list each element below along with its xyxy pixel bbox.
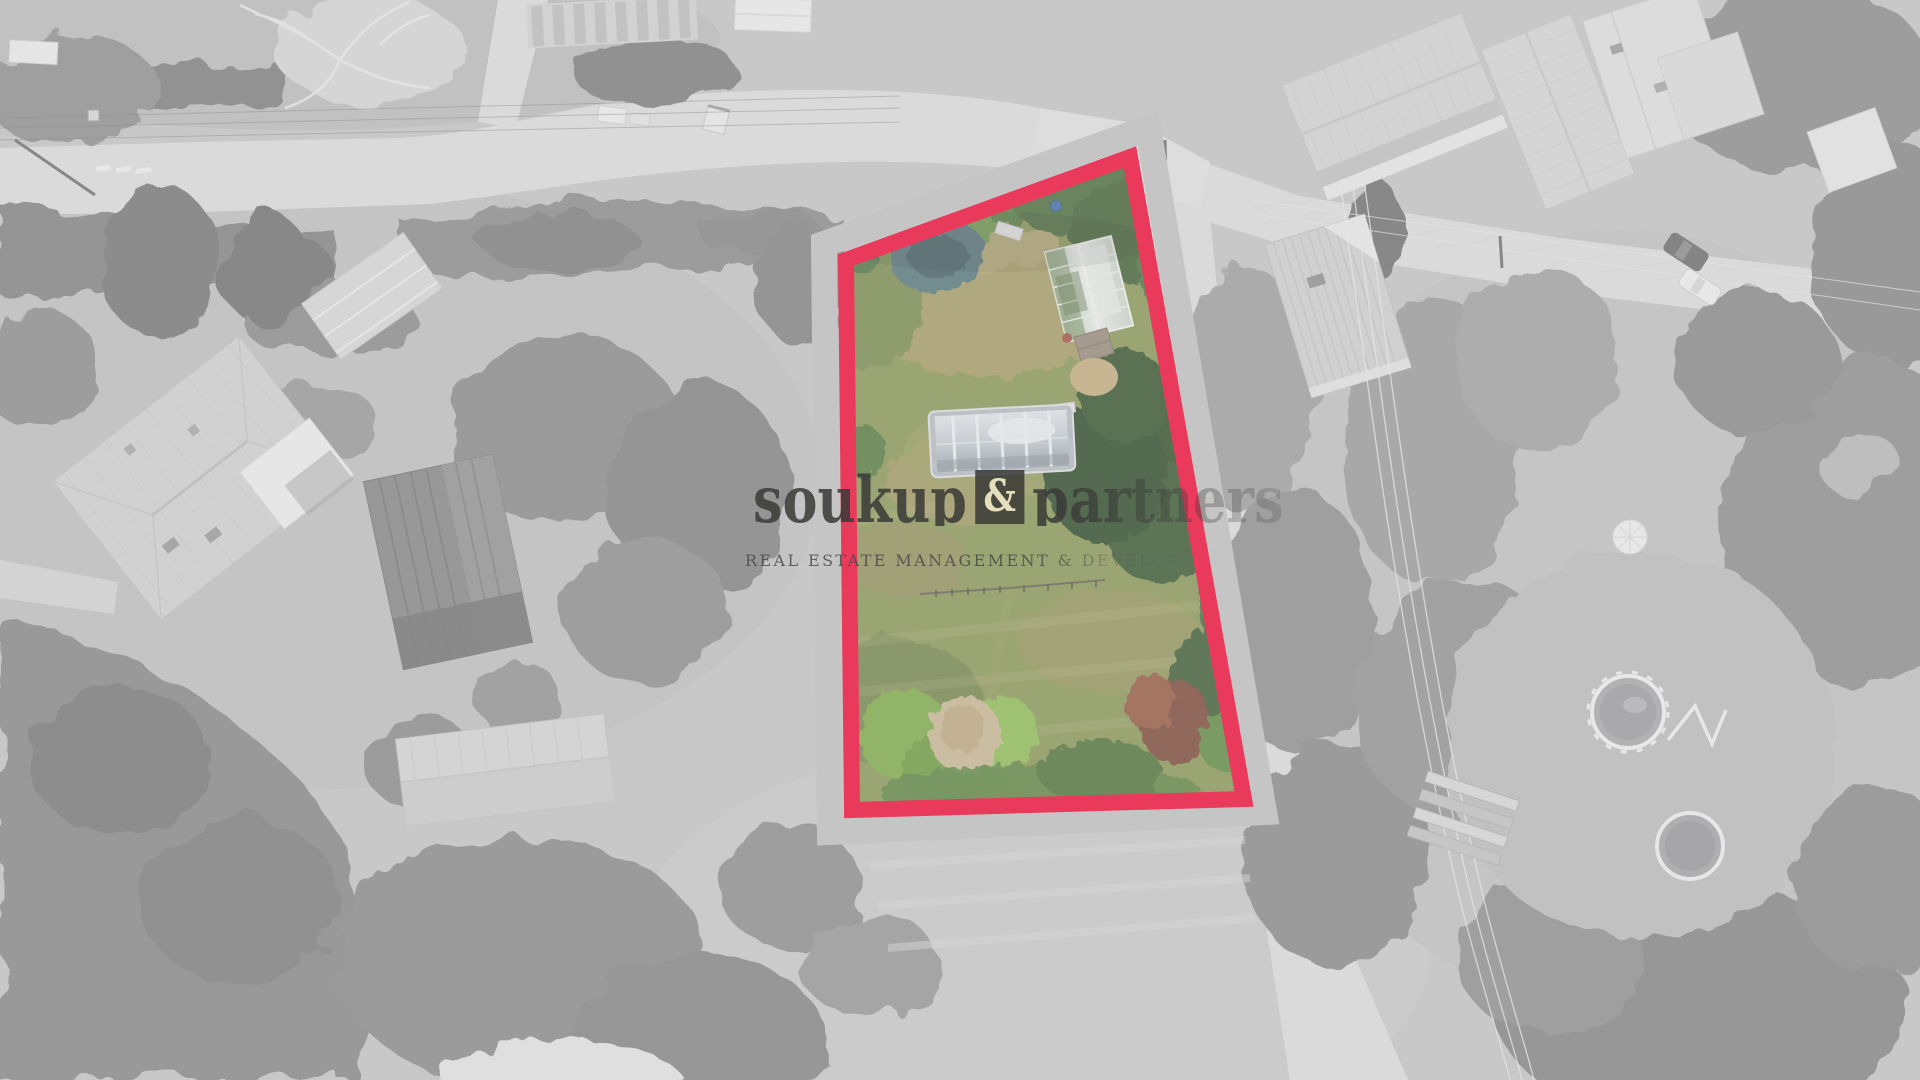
aerial-photo xyxy=(0,0,1920,1080)
photo-grain xyxy=(0,0,1920,1080)
listing-aerial-image: soukup&partners REAL ESTATE MANAGEMENT &… xyxy=(0,0,1920,1080)
